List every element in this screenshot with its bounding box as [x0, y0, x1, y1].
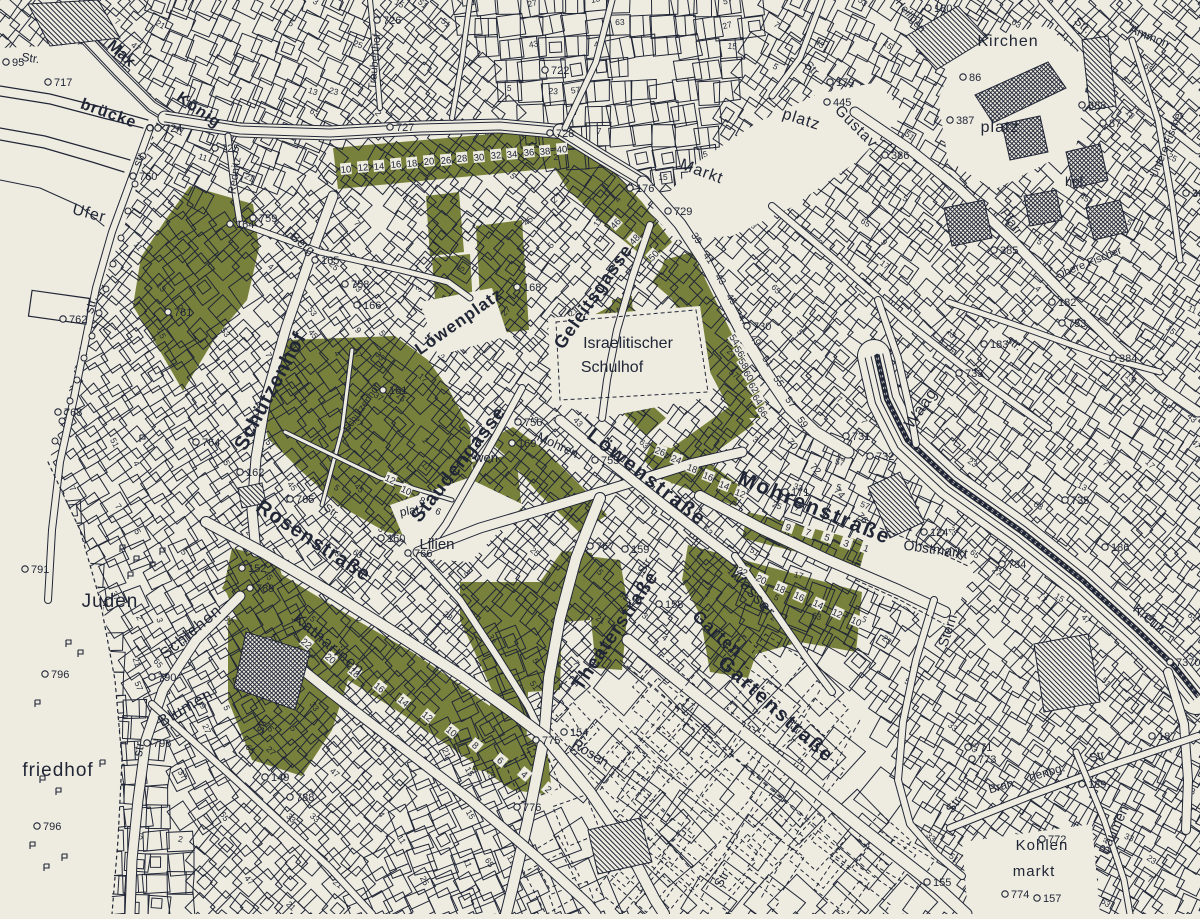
svg-text:Schulhof: Schulhof	[581, 359, 644, 376]
svg-text:387: 387	[956, 115, 974, 127]
svg-text:756: 756	[524, 417, 542, 429]
svg-text:791: 791	[31, 564, 49, 576]
svg-text:38: 38	[539, 146, 550, 158]
svg-text:726: 726	[383, 15, 401, 27]
svg-text:15: 15	[658, 172, 668, 182]
svg-text:86: 86	[969, 72, 981, 84]
svg-text:773: 773	[978, 754, 996, 766]
svg-text:164: 164	[236, 219, 254, 231]
svg-text:796: 796	[43, 821, 61, 833]
svg-text:155: 155	[933, 877, 951, 889]
svg-text:176: 176	[636, 183, 654, 195]
svg-text:160: 160	[387, 533, 405, 545]
svg-text:152: 152	[248, 563, 266, 575]
svg-text:32: 32	[490, 150, 501, 162]
svg-text:34: 34	[506, 149, 517, 161]
svg-text:789: 789	[256, 583, 274, 595]
svg-text:391: 391	[1192, 188, 1200, 200]
svg-text:386: 386	[891, 150, 909, 162]
svg-text:159: 159	[631, 544, 649, 556]
svg-text:87: 87	[1109, 118, 1121, 130]
svg-text:165: 165	[321, 255, 339, 267]
svg-text:759: 759	[259, 213, 277, 225]
svg-text:796: 796	[153, 738, 171, 750]
svg-text:763: 763	[64, 407, 82, 419]
svg-text:161: 161	[389, 385, 407, 397]
svg-text:775: 775	[542, 735, 560, 747]
svg-text:187: 187	[1158, 731, 1176, 743]
svg-text:162: 162	[246, 467, 264, 479]
svg-text:771: 771	[974, 742, 992, 754]
svg-text:16: 16	[390, 159, 401, 171]
svg-text:727: 727	[396, 122, 414, 134]
svg-text:57: 57	[723, 0, 734, 6]
svg-text:753: 753	[1068, 318, 1086, 330]
svg-text:731: 731	[852, 431, 870, 443]
svg-text:732: 732	[876, 451, 894, 463]
svg-text:166: 166	[363, 300, 381, 312]
svg-text:157: 157	[1043, 893, 1061, 905]
svg-text:Lilien: Lilien	[419, 536, 454, 553]
svg-text:762: 762	[69, 314, 87, 326]
svg-text:Juden: Juden	[82, 591, 139, 612]
svg-text:markt: markt	[1013, 863, 1056, 880]
svg-text:36: 36	[523, 147, 534, 159]
svg-text:774: 774	[1011, 889, 1029, 901]
svg-text:725: 725	[221, 143, 239, 155]
svg-text:40: 40	[556, 144, 567, 156]
svg-text:186: 186	[1111, 542, 1129, 554]
svg-text:Israelitischer: Israelitischer	[583, 335, 673, 352]
svg-text:730: 730	[753, 321, 771, 333]
svg-text:796: 796	[51, 669, 69, 681]
svg-text:hof: hof	[1065, 174, 1083, 189]
svg-text:788: 788	[296, 792, 314, 804]
svg-text:friedhof: friedhof	[22, 760, 93, 781]
svg-text:767: 767	[596, 541, 614, 553]
svg-text:734: 734	[1008, 559, 1026, 571]
svg-text:189: 189	[1088, 779, 1106, 791]
svg-text:168: 168	[523, 282, 541, 294]
svg-text:Kirchen: Kirchen	[977, 33, 1038, 50]
svg-text:23: 23	[548, 86, 559, 97]
svg-text:179: 179	[836, 77, 854, 89]
svg-text:wen: wen	[473, 450, 498, 465]
svg-text:14: 14	[373, 161, 384, 173]
svg-text:182: 182	[1058, 297, 1076, 309]
svg-text:12: 12	[357, 162, 368, 174]
svg-text:124: 124	[930, 527, 948, 539]
svg-text:790: 790	[158, 672, 176, 684]
svg-text:28: 28	[456, 153, 467, 165]
svg-text:729: 729	[674, 206, 692, 218]
svg-text:30: 30	[473, 152, 484, 164]
svg-text:722: 722	[551, 65, 569, 77]
svg-text:169: 169	[518, 438, 536, 450]
svg-text:760: 760	[139, 171, 157, 183]
svg-text:Kohlen: Kohlen	[1016, 837, 1069, 854]
svg-text:765: 765	[296, 494, 314, 506]
svg-text:761: 761	[174, 307, 192, 319]
svg-text:43: 43	[528, 38, 539, 50]
svg-text:776: 776	[523, 802, 541, 814]
svg-text:158: 158	[665, 599, 683, 611]
svg-text:platz: platz	[981, 119, 1020, 136]
svg-text:149: 149	[271, 772, 289, 784]
svg-text:180: 180	[934, 3, 952, 15]
svg-text:26: 26	[440, 155, 451, 167]
svg-text:7: 7	[597, 126, 602, 136]
svg-text:20: 20	[423, 156, 434, 168]
svg-text:724: 724	[164, 123, 182, 135]
svg-text:18: 18	[406, 158, 417, 170]
svg-text:Str.: Str.	[21, 50, 41, 66]
svg-text:7370: 7370	[1176, 657, 1200, 669]
svg-text:63: 63	[615, 17, 625, 27]
svg-text:384: 384	[1119, 353, 1137, 365]
svg-text:728: 728	[556, 128, 574, 140]
svg-text:733: 733	[965, 368, 983, 380]
svg-text:758: 758	[351, 279, 369, 291]
svg-text:388: 388	[1088, 100, 1106, 112]
svg-text:735: 735	[1071, 495, 1089, 507]
svg-text:15: 15	[727, 41, 738, 52]
svg-text:717: 717	[54, 77, 72, 89]
svg-text:764: 764	[202, 437, 220, 449]
svg-text:385: 385	[1000, 245, 1018, 257]
svg-text:10: 10	[340, 164, 351, 176]
